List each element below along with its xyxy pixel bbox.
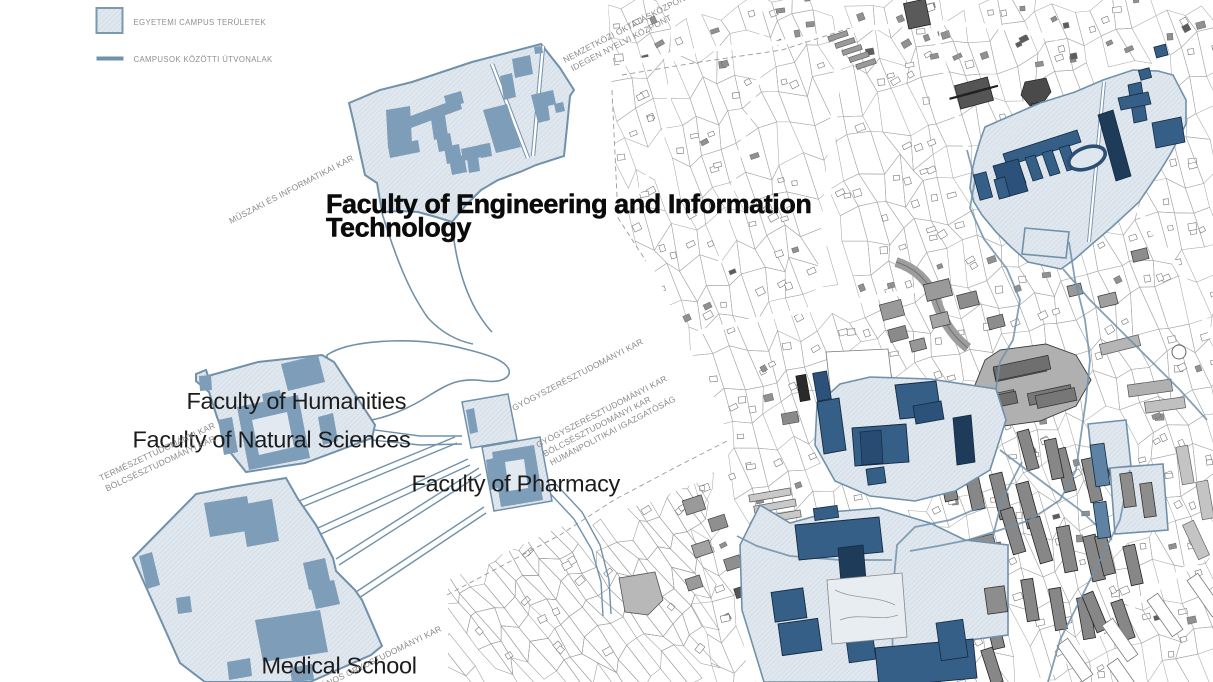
svg-text:CAMPUSOK KÖZÖTTI ÚTVONALAK: CAMPUSOK KÖZÖTTI ÚTVONALAK <box>134 55 274 64</box>
svg-text:Faculty of Pharmacy: Faculty of Pharmacy <box>412 471 621 497</box>
svg-text:EGYETEMI CAMPUS TERÜLETEK: EGYETEMI CAMPUS TERÜLETEK <box>134 18 267 27</box>
svg-text:Technology: Technology <box>326 213 471 243</box>
svg-text:Faculty of Humanities: Faculty of Humanities <box>187 388 407 414</box>
